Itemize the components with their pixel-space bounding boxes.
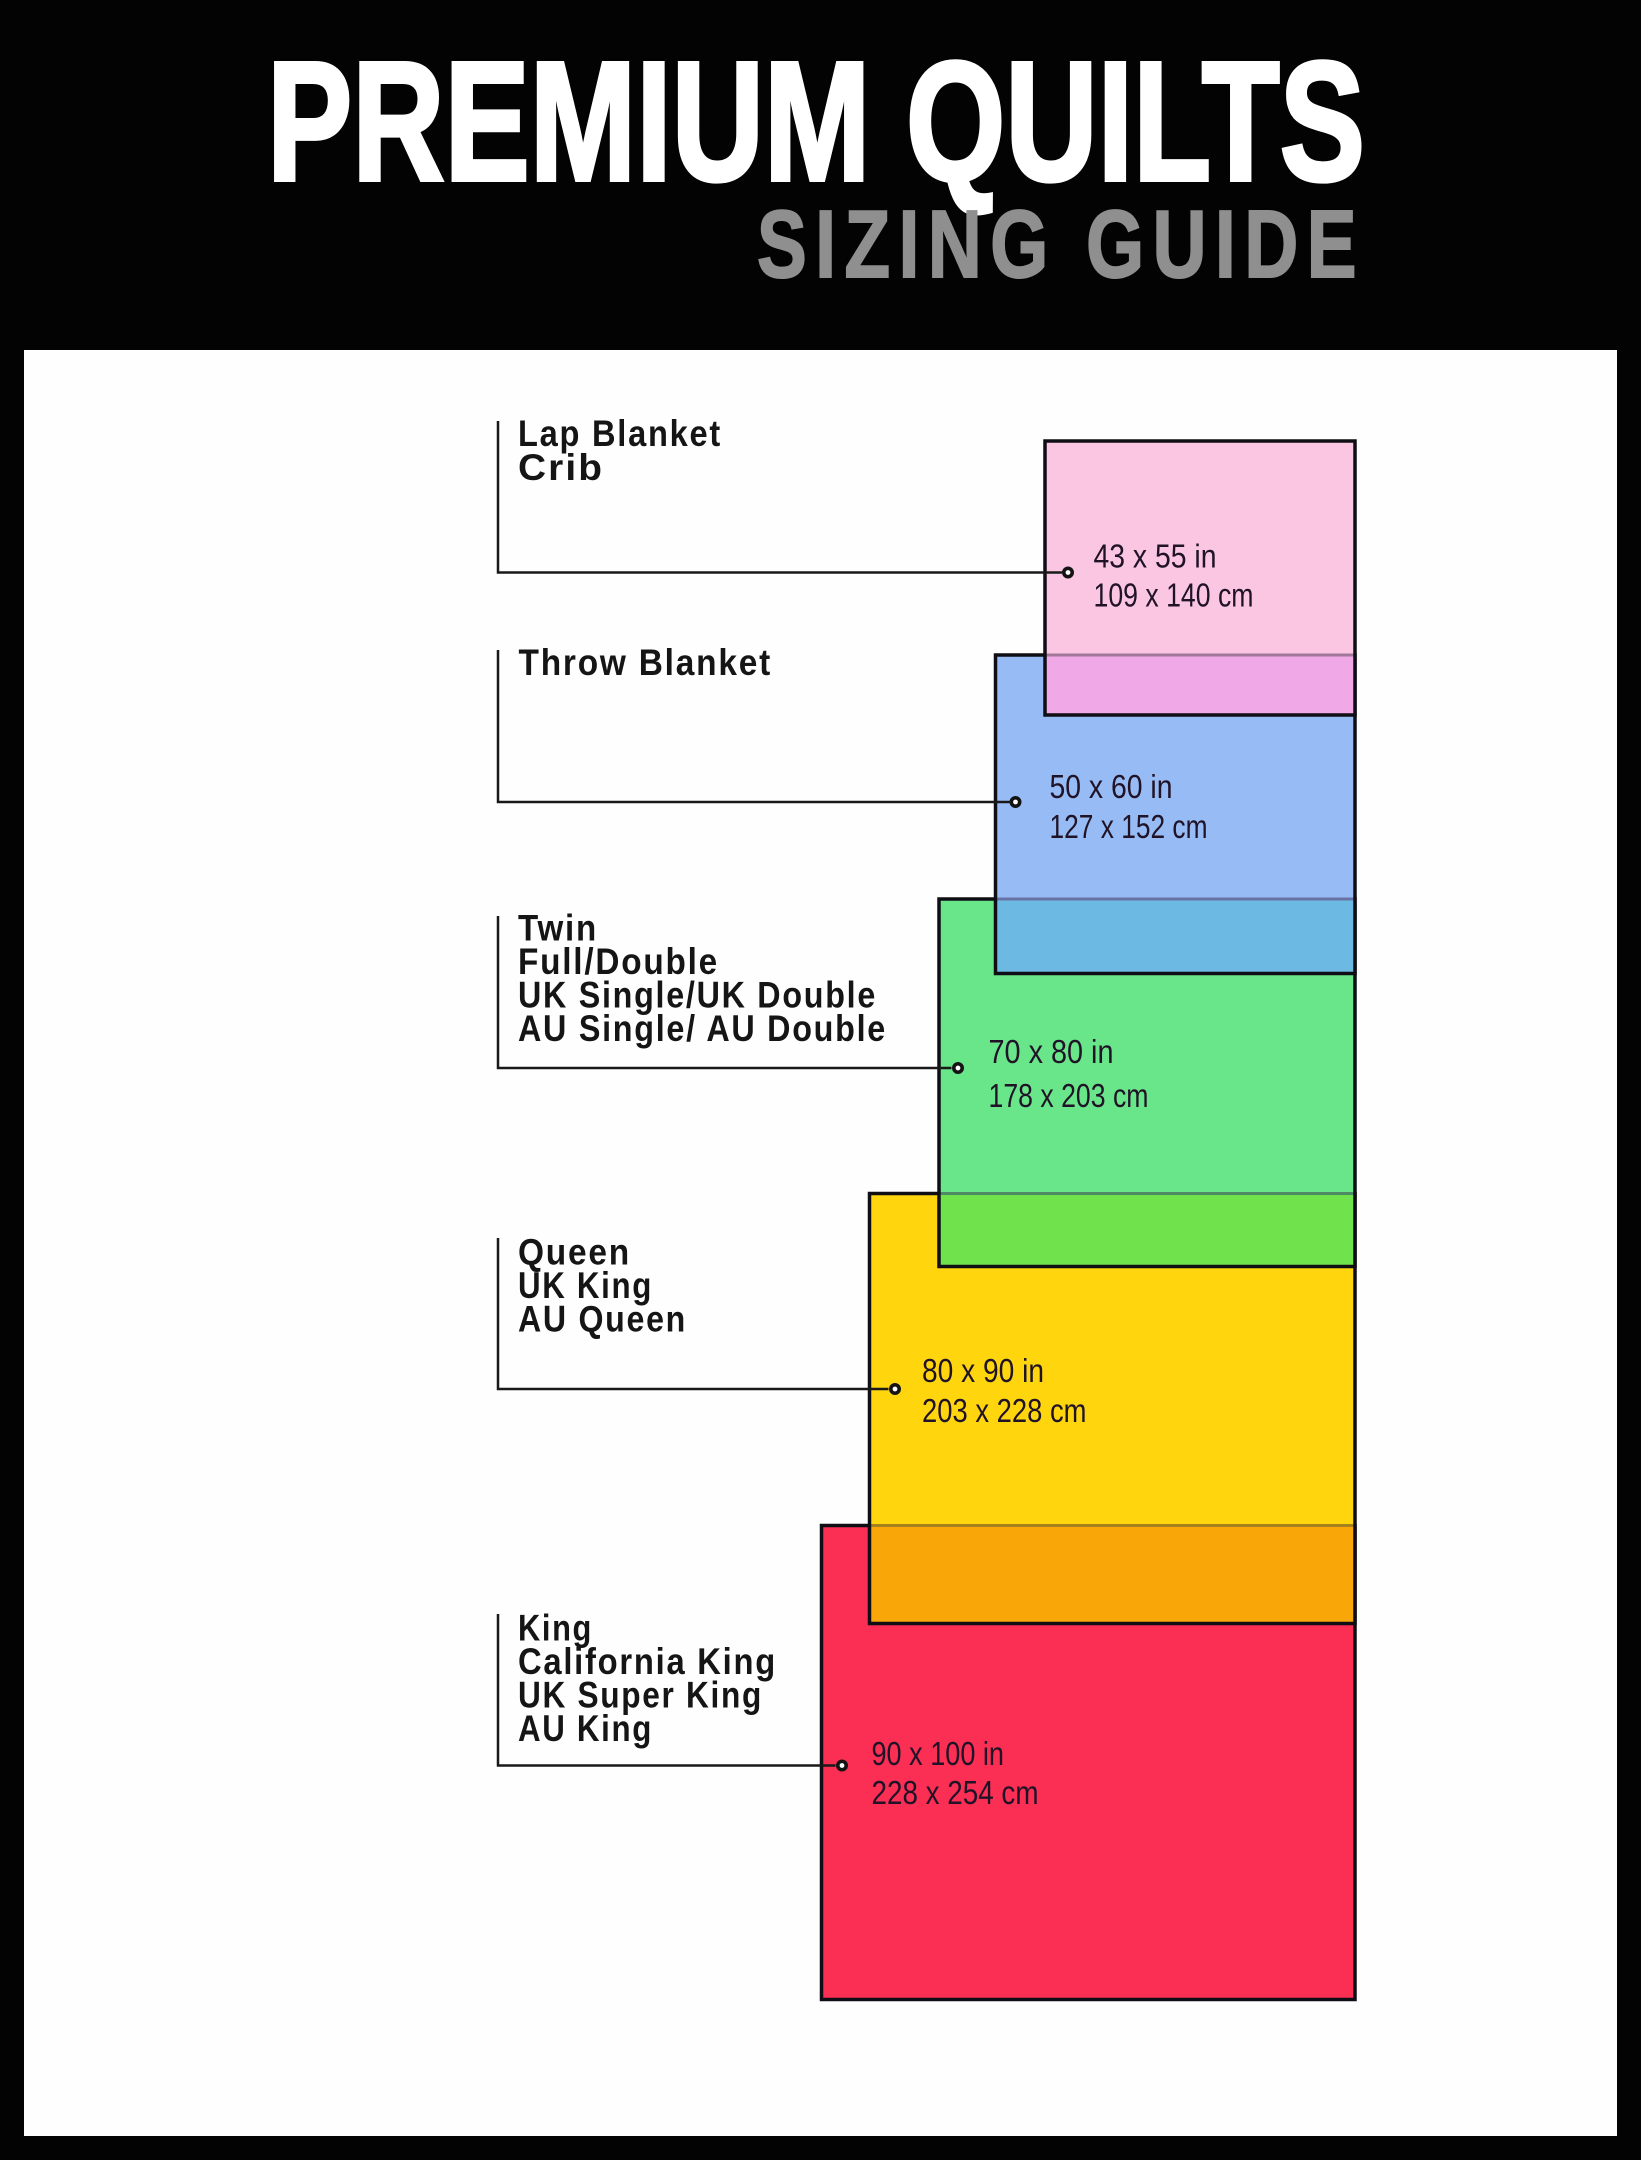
svg-text:127 x 152 cm: 127 x 152 cm [1050, 808, 1208, 845]
svg-text:109 x 140 cm: 109 x 140 cm [1094, 577, 1254, 614]
svg-text:AU Single/ AU Double: AU Single/ AU Double [518, 1007, 887, 1049]
svg-text:90 x 100 in: 90 x 100 in [872, 1735, 1005, 1772]
svg-text:PREMIUM QUILTS: PREMIUM QUILTS [267, 27, 1365, 217]
svg-text:70 x 80 in: 70 x 80 in [989, 1033, 1114, 1070]
svg-text:Crib: Crib [518, 446, 604, 488]
svg-text:AU Queen: AU Queen [518, 1298, 687, 1340]
svg-text:43 x 55 in: 43 x 55 in [1094, 538, 1217, 575]
svg-text:203 x 228 cm: 203 x 228 cm [922, 1392, 1087, 1429]
svg-text:50 x 60 in: 50 x 60 in [1050, 768, 1173, 805]
svg-text:228 x 254 cm: 228 x 254 cm [872, 1774, 1039, 1811]
svg-text:Throw Blanket: Throw Blanket [519, 641, 773, 683]
svg-text:AU King: AU King [518, 1707, 653, 1749]
svg-text:80 x 90 in: 80 x 90 in [922, 1352, 1044, 1389]
svg-text:SIZING GUIDE: SIZING GUIDE [757, 191, 1365, 298]
svg-text:178 x 203 cm: 178 x 203 cm [989, 1077, 1149, 1114]
